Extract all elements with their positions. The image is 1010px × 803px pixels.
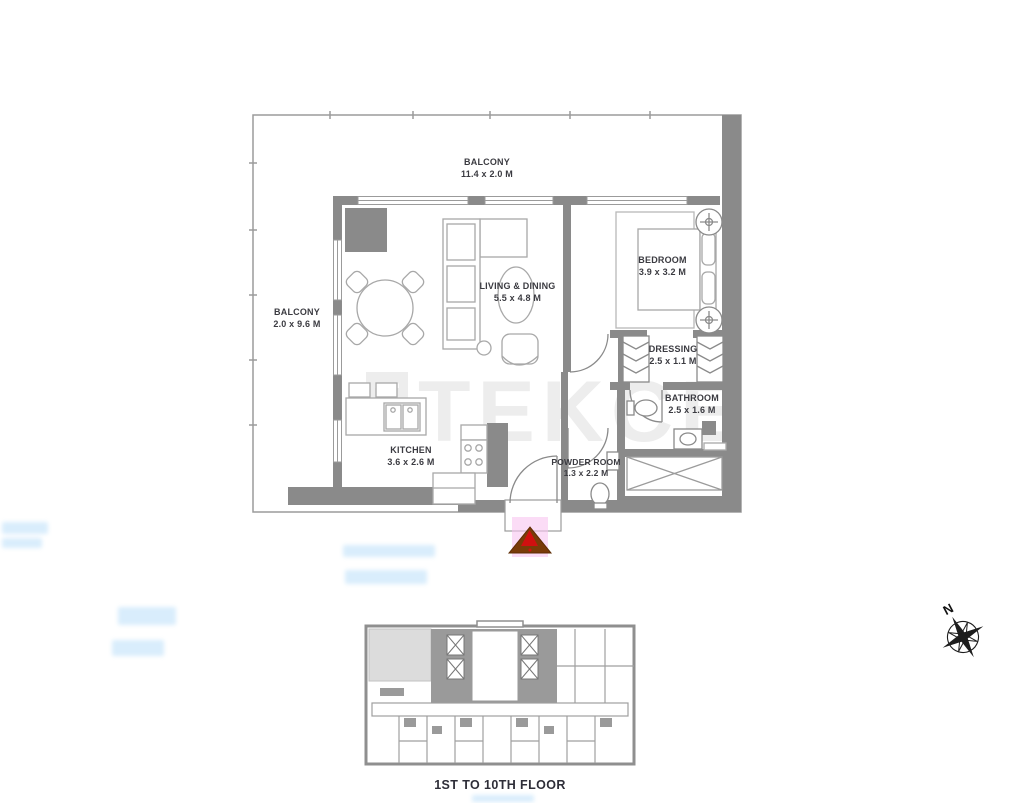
label-dressing: DRESSING 2.5 x 1.1 M [621, 343, 725, 367]
room-name: BALCONY [255, 306, 339, 318]
room-name: DRESSING [621, 343, 725, 355]
room-name: LIVING & DINING [455, 280, 580, 292]
room-name: BATHROOM [640, 392, 744, 404]
label-balcony-top: BALCONY 11.4 x 2.0 M [427, 156, 547, 180]
room-dims: 11.4 x 2.0 M [427, 168, 547, 180]
room-dims: 3.9 x 3.2 M [610, 266, 715, 278]
room-dims: 2.5 x 1.1 M [621, 355, 725, 367]
key-plan-caption: 1ST TO 10TH FLOOR [380, 778, 620, 792]
room-name: POWDER ROOM [550, 457, 622, 468]
label-balcony-left: BALCONY 2.0 x 9.6 M [255, 306, 339, 330]
room-name: KITCHEN [359, 444, 463, 456]
label-kitchen: KITCHEN 3.6 x 2.6 M [359, 444, 463, 468]
room-dims: 2.5 x 1.6 M [640, 404, 744, 416]
room-labels: BALCONY 11.4 x 2.0 M BALCONY 2.0 x 9.6 M… [0, 0, 1010, 803]
label-bathroom: BATHROOM 2.5 x 1.6 M [640, 392, 744, 416]
label-powder-room: POWDER ROOM 1.3 x 2.2 M [550, 457, 622, 479]
room-name: BALCONY [427, 156, 547, 168]
label-bedroom: BEDROOM 3.9 x 3.2 M [610, 254, 715, 278]
room-dims: 5.5 x 4.8 M [455, 292, 580, 304]
room-dims: 1.3 x 2.2 M [550, 468, 622, 479]
room-dims: 3.6 x 2.6 M [359, 456, 463, 468]
room-dims: 2.0 x 9.6 M [255, 318, 339, 330]
floor-plan-page: T TEKCE [0, 0, 1010, 803]
room-name: BEDROOM [610, 254, 715, 266]
label-living-dining: LIVING & DINING 5.5 x 4.8 M [455, 280, 580, 304]
